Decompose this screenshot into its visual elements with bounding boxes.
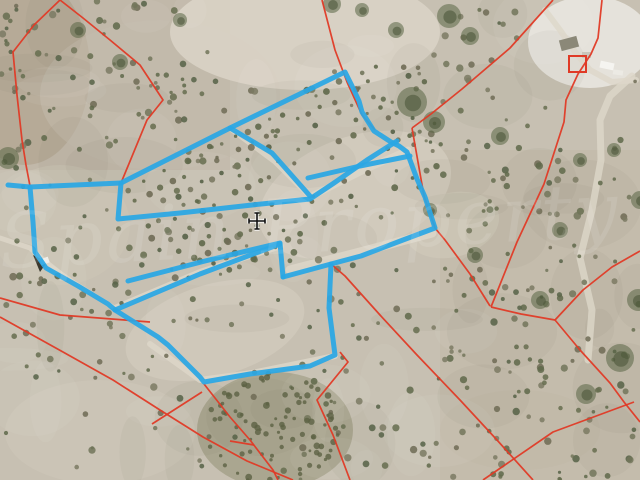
map-viewport[interactable]: Spain Property — [0, 0, 640, 480]
satellite-map[interactable]: Spain Property — [0, 0, 640, 480]
